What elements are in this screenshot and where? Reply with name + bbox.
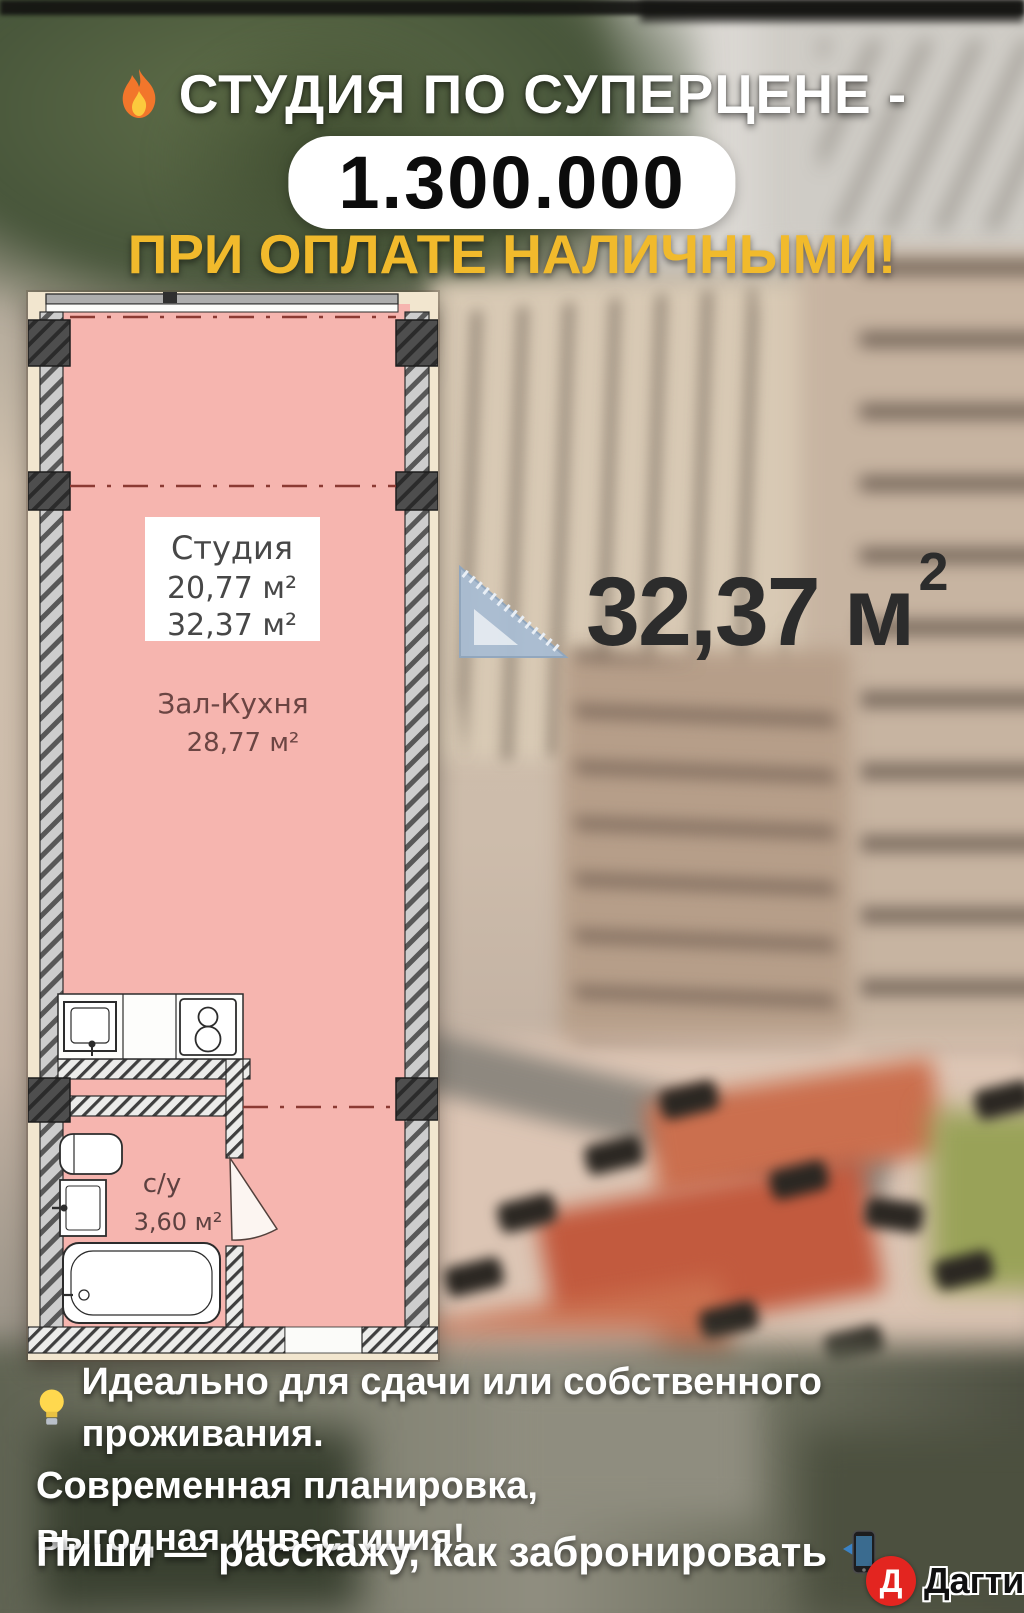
top-window-sill bbox=[46, 304, 398, 312]
hall-wall-upper bbox=[226, 1059, 243, 1158]
bottom-wall-left bbox=[28, 1327, 285, 1353]
kitchen-counter bbox=[58, 994, 243, 1059]
floor-plan: Студия 20,77 м² 32,37 м² Зал-Кухня 28,77… bbox=[28, 292, 438, 1360]
bathroom-area: 3,60 м² bbox=[134, 1208, 223, 1236]
price-value: 1.300.000 bbox=[338, 141, 685, 224]
cta-label: Пиши — расскажу, как забронировать bbox=[36, 1528, 827, 1576]
floor-plan-drawing: Студия 20,77 м² 32,37 м² Зал-Кухня 28,77… bbox=[28, 292, 438, 1360]
watermark-logo: Д bbox=[866, 1556, 916, 1606]
column bbox=[28, 472, 70, 510]
ad-subtitle: ПРИ ОПЛАТЕ НАЛИЧНЫМИ! bbox=[0, 222, 1024, 286]
column bbox=[396, 1078, 438, 1120]
entry-door-opening bbox=[285, 1327, 362, 1353]
bottom-wall-right bbox=[362, 1327, 438, 1353]
area-value: 32,37 м bbox=[586, 556, 913, 668]
room-name: Зал-Кухня bbox=[157, 687, 308, 720]
right-wall bbox=[405, 312, 429, 1353]
plan-living-area: 20,77 м² bbox=[167, 571, 297, 606]
price-badge: 1.300.000 bbox=[288, 136, 735, 229]
column bbox=[396, 320, 438, 366]
total-area-badge: 32,37 м 2 bbox=[452, 556, 949, 668]
column bbox=[396, 472, 438, 510]
bg-blob bbox=[640, 0, 1024, 22]
benefit-line-1: Идеально для сдачи или собственного прож… bbox=[81, 1356, 1001, 1460]
plan-total-area: 32,37 м² bbox=[167, 608, 297, 643]
area-superscript: 2 bbox=[918, 541, 948, 603]
bg-blob bbox=[860, 260, 1024, 1100]
bathroom-wall bbox=[66, 1096, 226, 1116]
header: СТУДИЯ ПО СУПЕРЦЕНЕ - bbox=[0, 62, 1024, 126]
set-square-icon bbox=[452, 561, 570, 663]
benefit-line-2: Современная планировка, bbox=[36, 1460, 1001, 1512]
fire-icon bbox=[117, 67, 161, 121]
kitchen-wall bbox=[58, 1059, 250, 1079]
ad-image: СТУДИЯ ПО СУПЕРЦЕНЕ - 1.300.000 ПРИ ОПЛА… bbox=[0, 0, 1024, 1613]
cta-text: Пиши — расскажу, как забронировать bbox=[36, 1528, 877, 1576]
hall-wall-lower bbox=[226, 1246, 243, 1327]
column bbox=[28, 320, 70, 366]
column bbox=[28, 1078, 70, 1122]
watermark-dagti: Д Дагти bbox=[866, 1556, 1024, 1606]
plan-title: Студия bbox=[171, 529, 293, 567]
bathroom-name: с/у bbox=[143, 1169, 181, 1199]
room-area: 28,77 м² bbox=[187, 728, 300, 758]
ad-title: СТУДИЯ ПО СУПЕРЦЕНЕ - bbox=[179, 62, 907, 126]
lightbulb-icon bbox=[36, 1385, 67, 1431]
watermark-initial: Д bbox=[880, 1563, 903, 1600]
top-window-wall bbox=[46, 294, 398, 304]
vent-block bbox=[163, 292, 177, 303]
left-wall bbox=[40, 312, 63, 1332]
bathtub-icon bbox=[63, 1243, 220, 1323]
toilet-icon bbox=[60, 1134, 122, 1174]
watermark-name: Дагти bbox=[924, 1560, 1024, 1602]
